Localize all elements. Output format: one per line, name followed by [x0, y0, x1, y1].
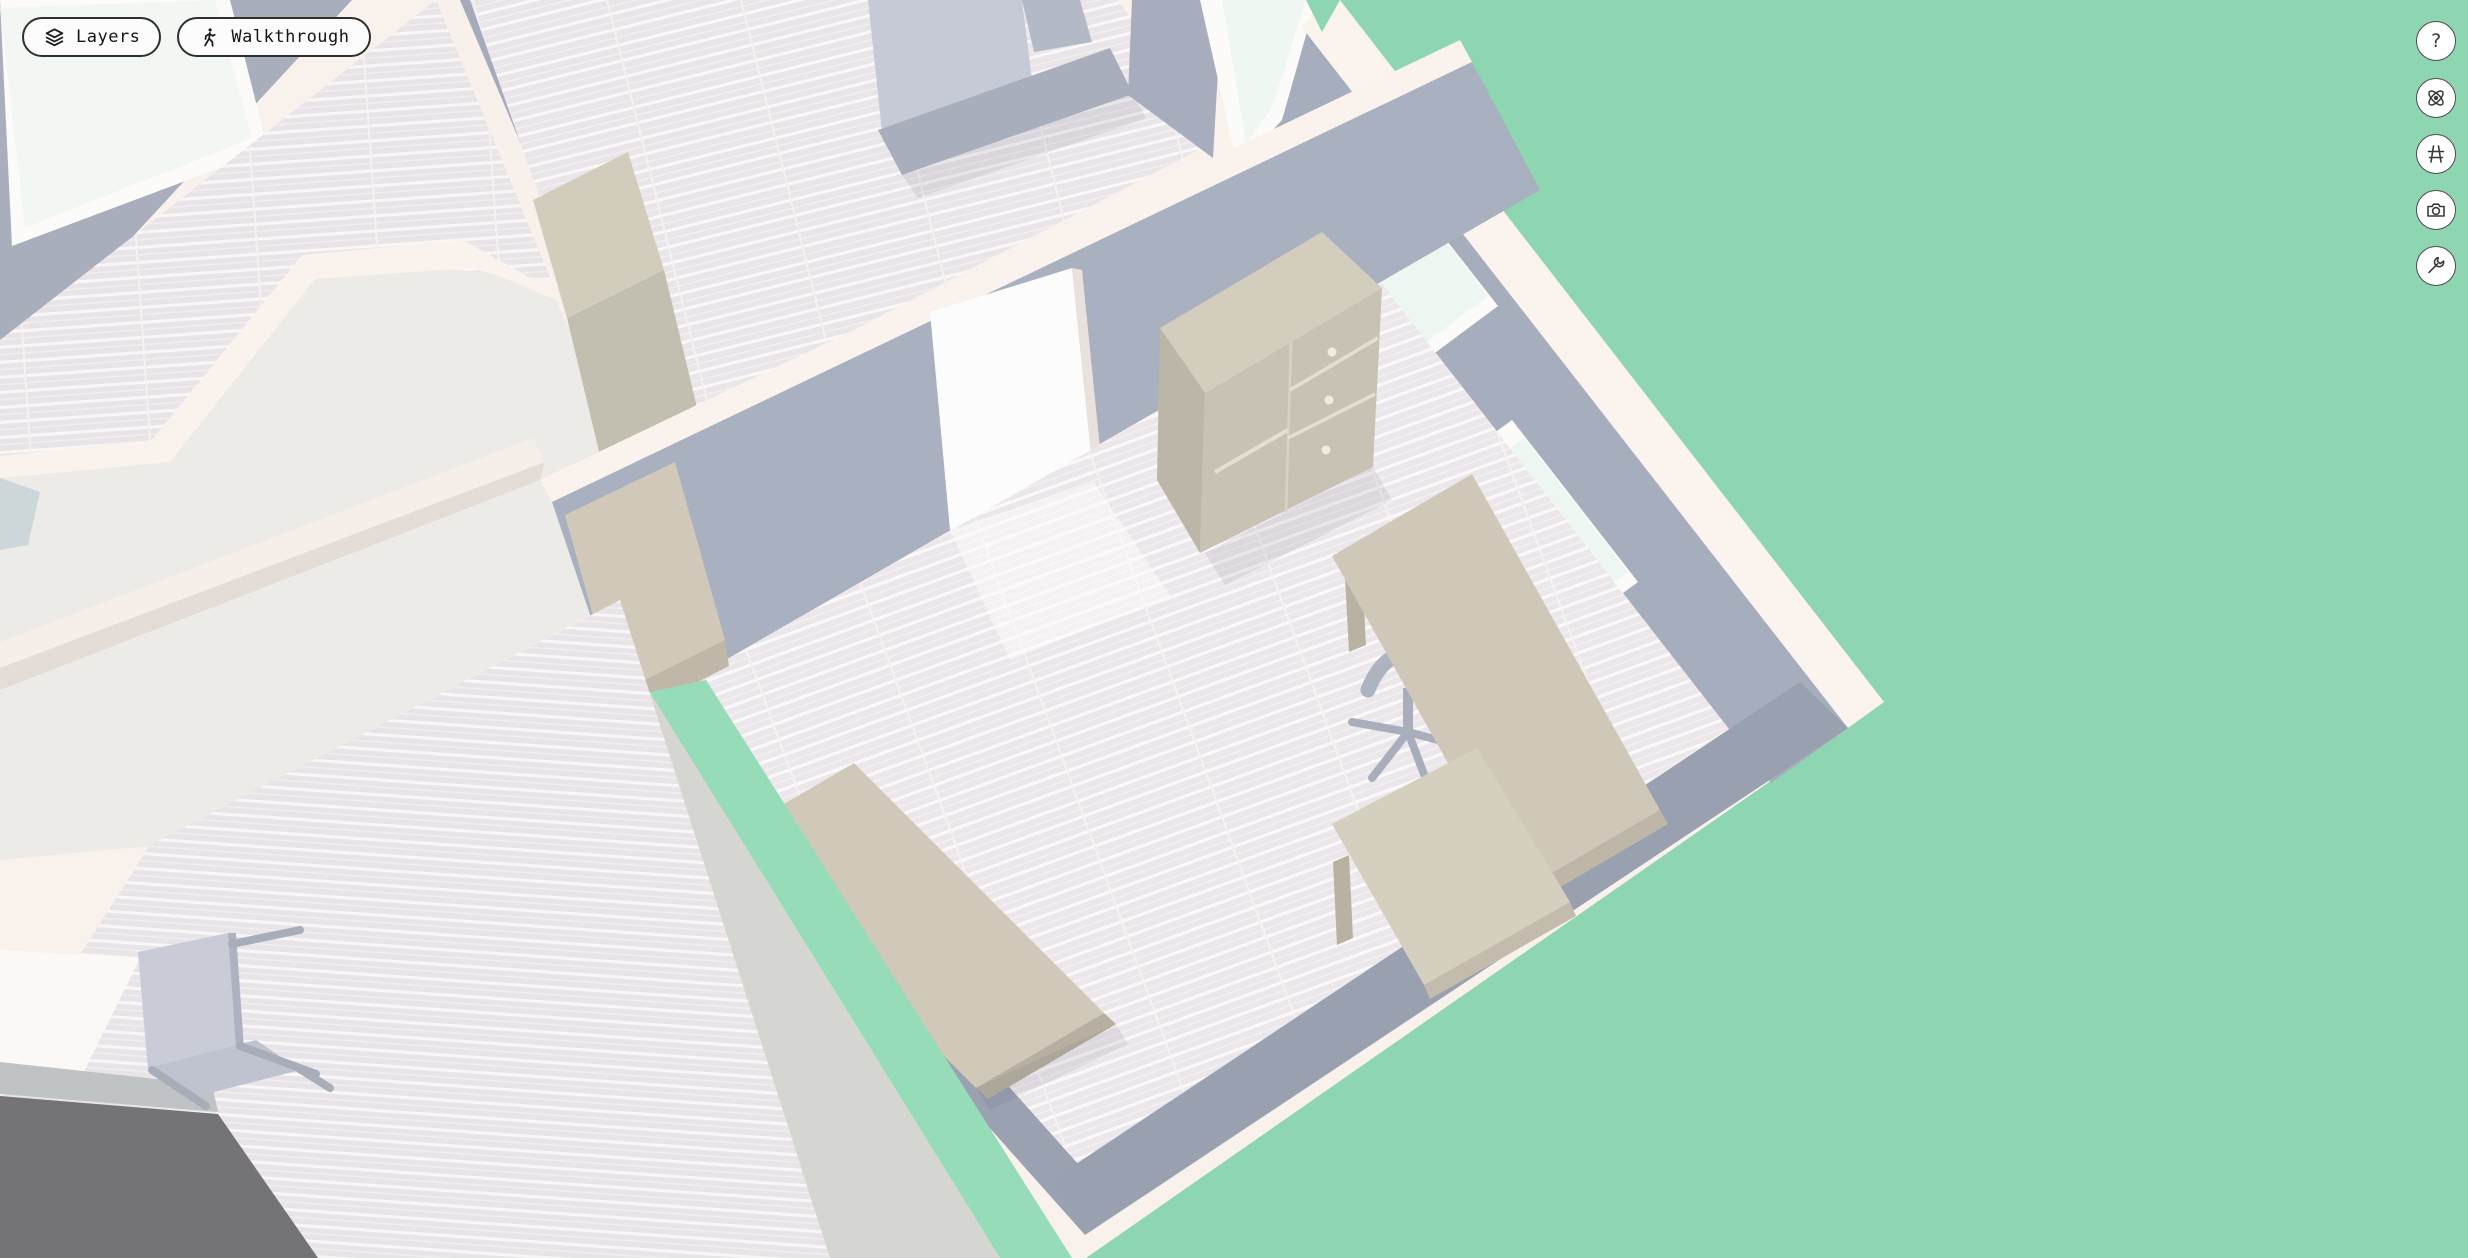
question-mark-icon: ? [2430, 30, 2441, 52]
wrench-icon [2425, 255, 2447, 277]
perspective-grid-button[interactable] [2416, 134, 2456, 174]
layers-button-label: Layers [76, 27, 140, 47]
orbit-view-button[interactable] [2416, 78, 2456, 118]
top-toolbar: Layers Walkthrough [22, 17, 371, 57]
walkthrough-button-label: Walkthrough [231, 27, 349, 47]
tools-button[interactable] [2416, 246, 2456, 286]
walkthrough-icon [198, 26, 220, 48]
walkthrough-button[interactable]: Walkthrough [177, 17, 370, 57]
help-button[interactable]: ? [2416, 21, 2456, 61]
snapshot-button[interactable] [2416, 190, 2456, 230]
camera-icon [2425, 199, 2447, 221]
layers-button[interactable]: Layers [22, 17, 161, 57]
scene-canvas[interactable] [0, 0, 2468, 1258]
orbit-icon [2424, 86, 2448, 110]
grid-icon [2425, 143, 2447, 165]
layers-icon [43, 26, 65, 48]
floorplan-3d-viewport[interactable] [0, 0, 2468, 1258]
